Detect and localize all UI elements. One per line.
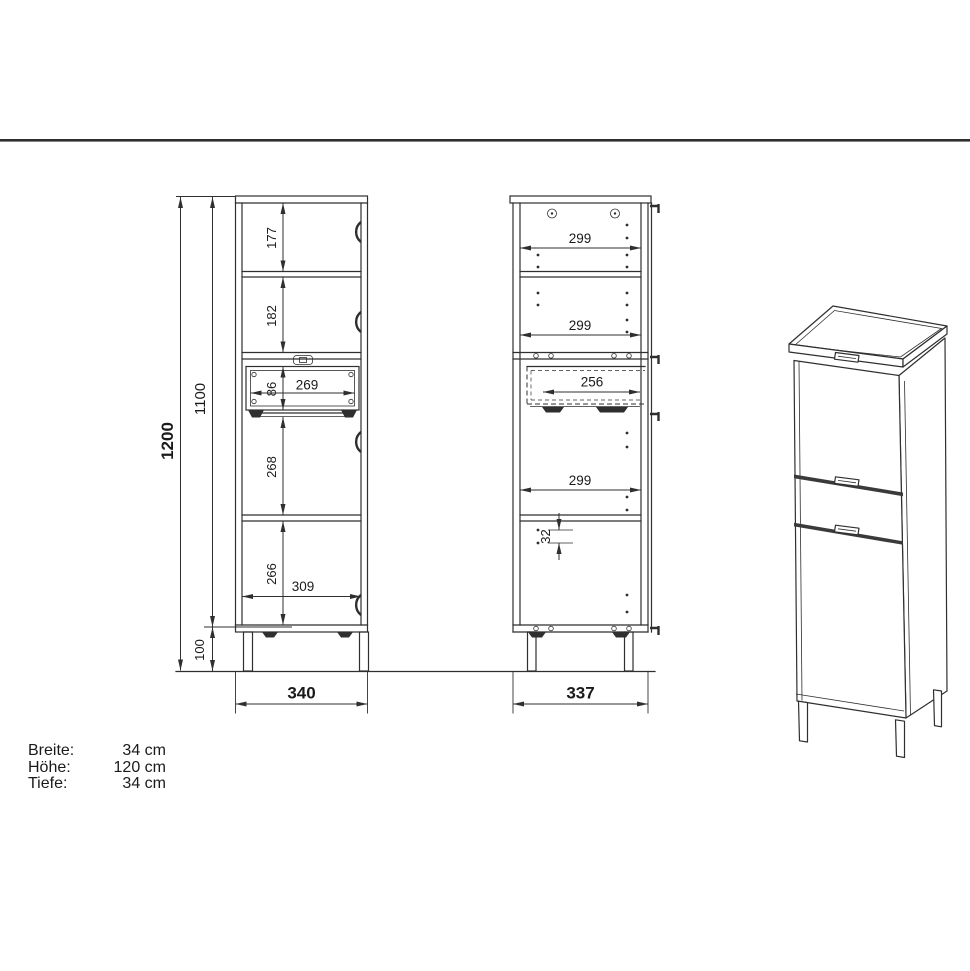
side-panel-3d [899,338,947,718]
side-view-drawing: 299 299 256 299 32 337 [510,196,659,714]
product-dimension-sheet: 1200 1100 100 177 182 86 269 268 266 309… [0,0,970,971]
front-right-leg [360,632,369,671]
front-left-leg [244,632,253,671]
dim-side-drawer-depth: 256 [581,375,604,390]
side-screw-icons [548,209,620,218]
leg-3d-front-left [799,701,808,742]
spec-row-height: Höhe: 120 cm [28,760,166,777]
cabinet-3d-view [789,306,947,758]
spec-value-width: 34 cm [104,743,166,760]
drawer-slide-right [596,407,628,413]
dim-side-hole-pitch: 32 [538,529,553,543]
dimension-spec-list: Breite: 34 cm Höhe: 120 cm Tiefe: 34 cm [28,743,166,793]
dim-front-overall-height: 1200 [158,422,177,460]
drawer-slide-left [542,407,564,413]
leg-3d-front-right [896,720,905,758]
dim-front-section-second: 182 [264,305,279,327]
side-leg-assembly [528,626,634,671]
side-drawer-section [527,367,645,413]
dim-front-section-third: 268 [264,456,279,478]
front-shelf-lines [242,272,361,522]
drawer-handle-icon [294,356,313,365]
dim-side-depth-top: 299 [569,231,592,246]
dim-front-interior-width: 309 [292,579,315,594]
spec-value-height: 120 cm [104,760,166,777]
diagram-canvas: 1200 1100 100 177 182 86 269 268 266 309… [0,0,970,971]
dim-side-depth-middle: 299 [569,318,592,333]
dim-front-drawer-height: 86 [264,382,279,396]
spec-row-width: Breite: 34 cm [28,743,166,760]
dim-front-section-top: 177 [264,227,279,249]
spec-label-depth: Tiefe: [28,776,104,793]
front-leg-assembly [244,632,369,671]
dim-front-section-bottom: 266 [264,563,279,585]
front-view-drawing: 1200 1100 100 177 182 86 269 268 266 309… [158,196,369,714]
side-view-dimensions: 299 299 256 299 32 337 [513,231,648,714]
divider-line [0,139,970,142]
dim-front-leg-height: 100 [192,639,207,661]
dim-side-overall-depth: 337 [566,684,594,703]
dim-front-body-height: 1100 [192,383,209,415]
side-back-leg [528,632,537,671]
spec-row-depth: Tiefe: 34 cm [28,776,166,793]
dim-front-overall-width: 340 [287,684,315,703]
side-cabinet-outline [510,196,652,632]
side-front-leg [625,632,634,671]
side-pin-holes [537,224,629,614]
spec-label-width: Breite: [28,743,104,760]
leg-3d-back-right [934,690,942,727]
front-view-dimensions: 1200 1100 100 177 182 86 269 268 266 309… [158,197,368,714]
spec-value-depth: 34 cm [104,776,166,793]
spec-label-height: Höhe: [28,760,104,777]
dim-side-depth-lower: 299 [569,473,592,488]
door-hinge-icons [356,222,361,615]
dim-front-drawer-width: 269 [296,378,319,393]
